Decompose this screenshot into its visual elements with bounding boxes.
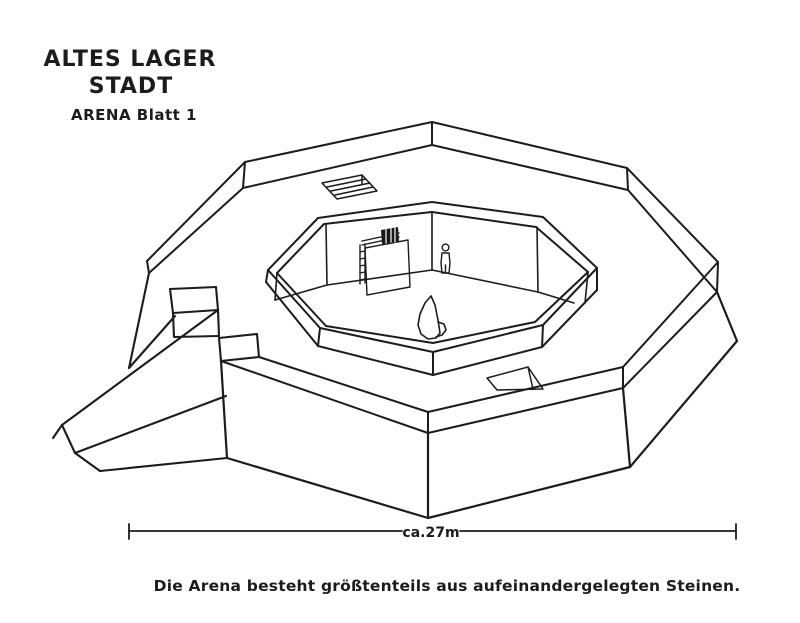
standing-stone	[418, 296, 446, 339]
title-line-1: ALTES LAGER	[43, 47, 216, 72]
stair-opening-top	[322, 175, 377, 199]
arena-drawing: ALTES LAGER STADT ARENA Blatt 1 ca.27m D…	[0, 0, 800, 623]
title-line-3: ARENA Blatt 1	[71, 106, 197, 124]
door-and-ladder	[360, 227, 410, 295]
title-line-2: STADT	[89, 74, 173, 99]
outer-wall-rim	[147, 122, 718, 433]
sketch-page: ALTES LAGER STADT ARENA Blatt 1 ca.27m D…	[0, 0, 800, 623]
entrance-ramp	[53, 273, 259, 471]
caption-text: Die Arena besteht größtenteils aus aufei…	[154, 577, 741, 595]
scale-label: ca.27m	[402, 525, 459, 541]
arena-geometry	[53, 122, 737, 539]
human-figure	[441, 244, 450, 273]
